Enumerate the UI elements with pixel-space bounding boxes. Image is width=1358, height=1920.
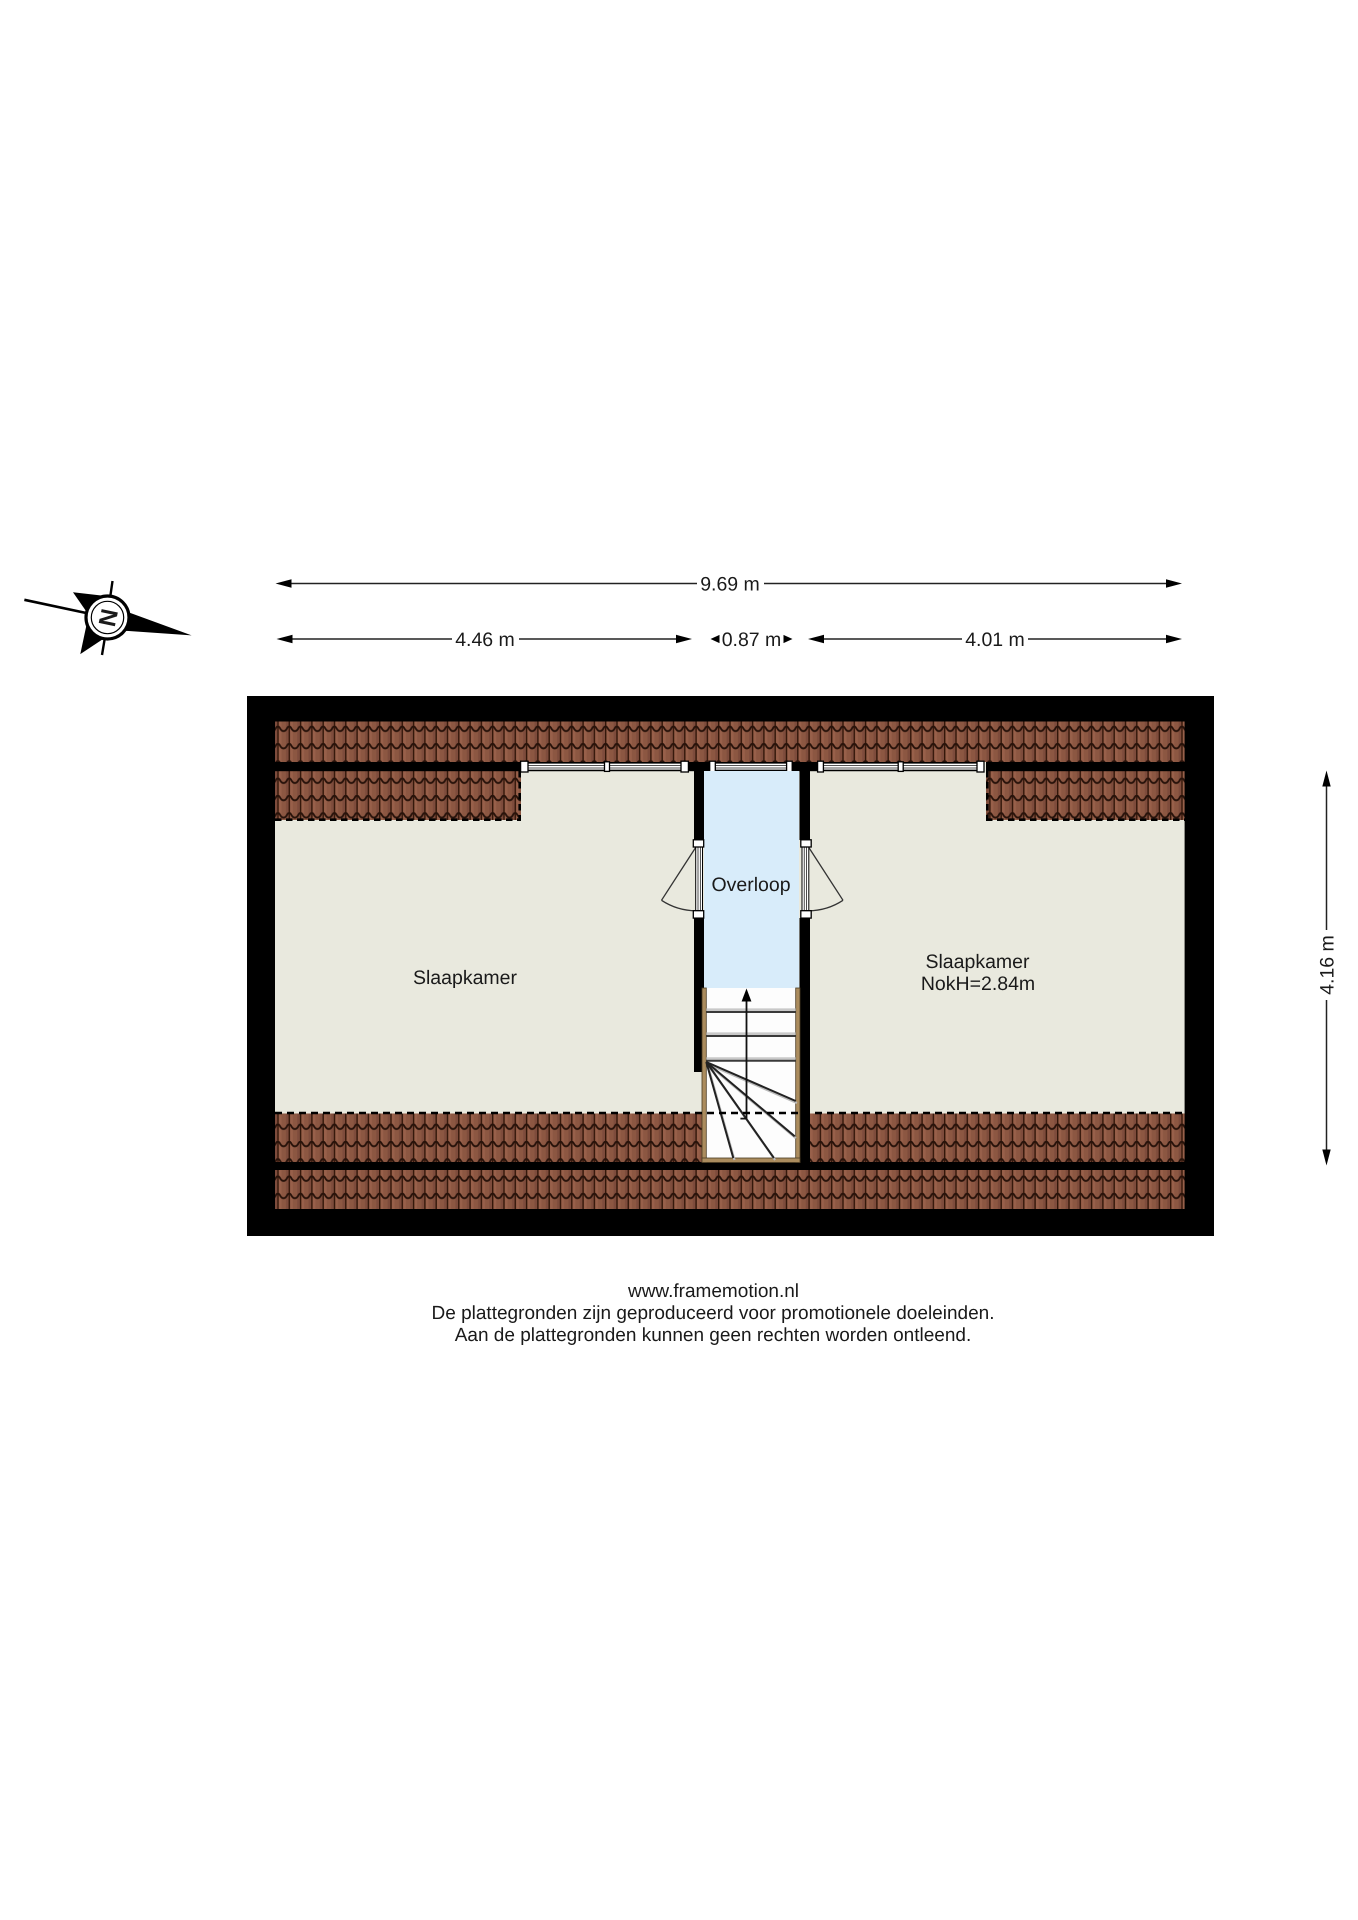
svg-text:Aan de plattegronden kunnen ge: Aan de plattegronden kunnen geen rechten… [455,1325,972,1346]
svg-text:9.69 m: 9.69 m [700,574,760,596]
svg-text:0.87 m: 0.87 m [722,629,782,651]
svg-text:Slaapkamer: Slaapkamer [413,967,518,989]
svg-text:4.46 m: 4.46 m [455,629,515,651]
svg-text:Overloop: Overloop [711,874,790,896]
svg-text:4.01 m: 4.01 m [965,629,1025,651]
svg-text:www.framemotion.nl: www.framemotion.nl [627,1281,799,1302]
svg-text:De plattegronden zijn geproduc: De plattegronden zijn geproduceerd voor … [432,1303,995,1324]
svg-text:NokH=2.84m: NokH=2.84m [921,973,1035,995]
svg-text:4.16 m: 4.16 m [1317,935,1339,995]
svg-text:Slaapkamer: Slaapkamer [925,951,1030,973]
